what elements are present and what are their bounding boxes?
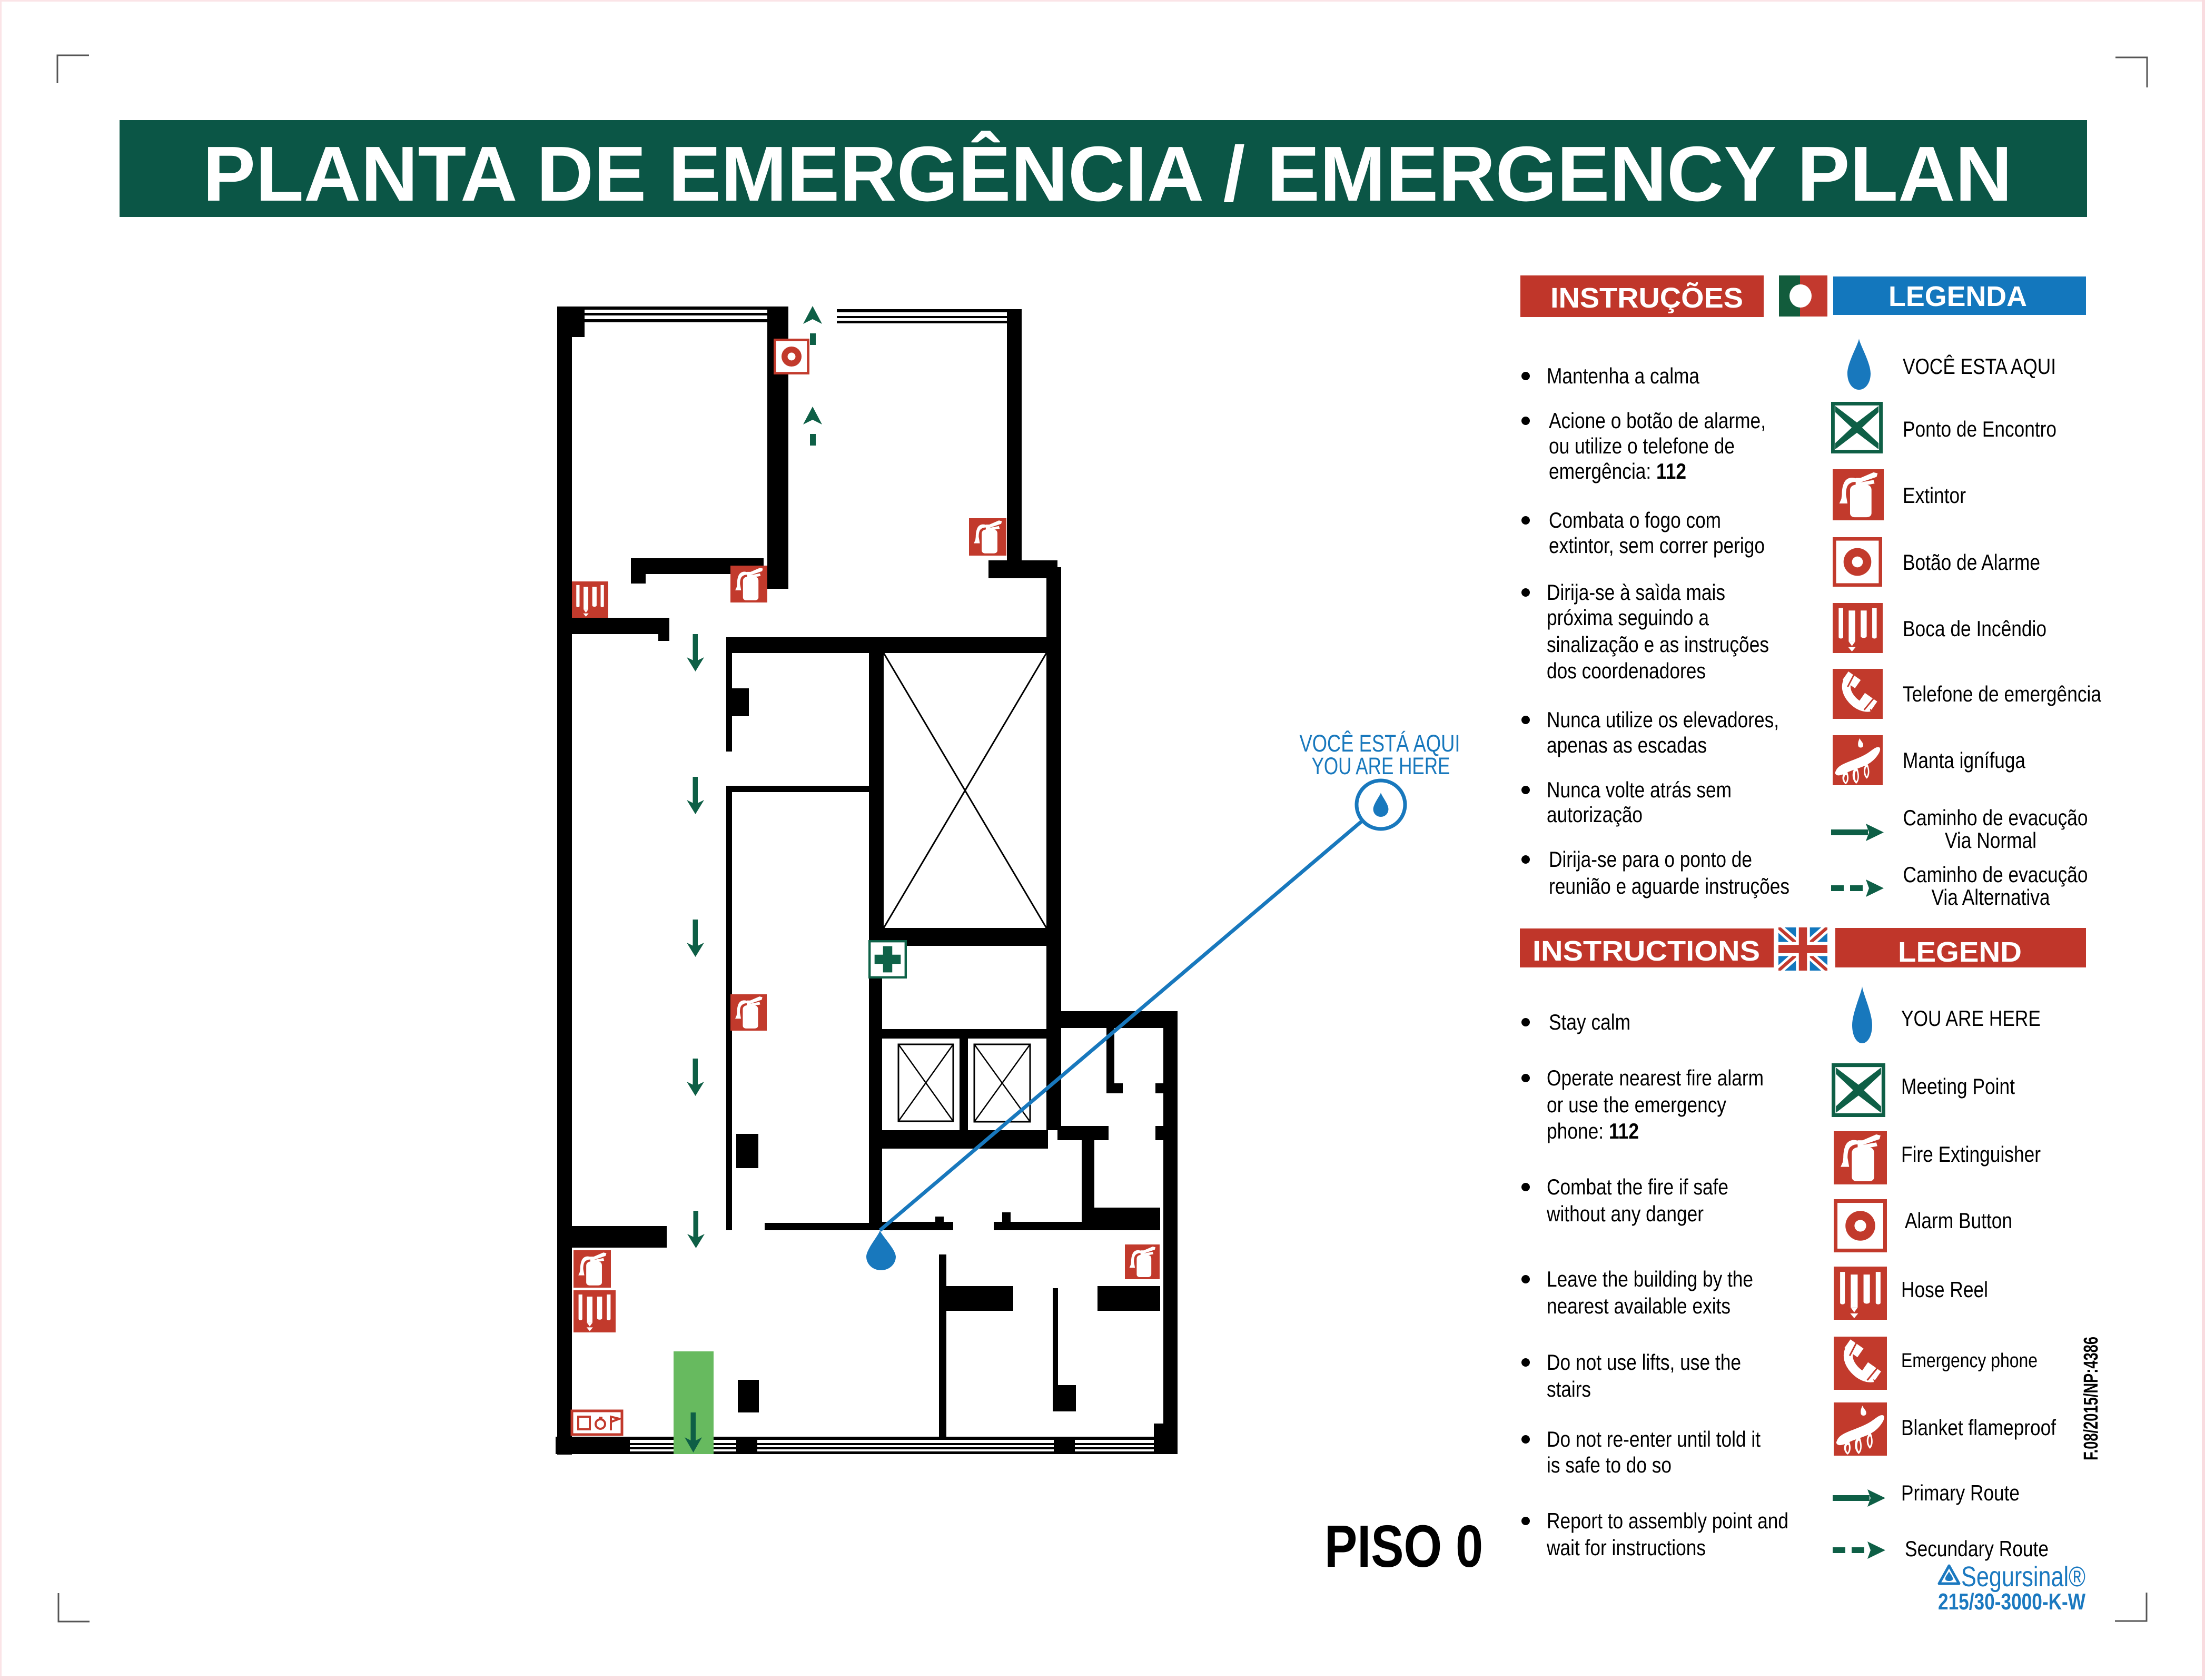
svg-text:Nunca utilize os elevadores,: Nunca utilize os elevadores, bbox=[1547, 707, 1779, 732]
svg-text:INSTRUÇÕES: INSTRUÇÕES bbox=[1550, 282, 1743, 314]
svg-text:LEGEND: LEGEND bbox=[1898, 936, 2022, 968]
svg-text:Do not use lifts, use the: Do not use lifts, use the bbox=[1547, 1350, 1741, 1375]
svg-text:Acione o botão de alarme,: Acione o botão de alarme, bbox=[1549, 408, 1766, 433]
svg-text:ou utilize o telefone de: ou utilize o telefone de bbox=[1549, 433, 1735, 458]
svg-text:Emergency phone: Emergency phone bbox=[1901, 1350, 2038, 1372]
svg-text:Boca de Incêndio: Boca de Incêndio bbox=[1903, 616, 2046, 641]
svg-text:sinalização e as instruções: sinalização e as instruções bbox=[1547, 632, 1769, 657]
svg-text:próxima seguindo a: próxima seguindo a bbox=[1547, 605, 1709, 630]
svg-text:Stay calm: Stay calm bbox=[1549, 1010, 1630, 1034]
svg-text:Nunca volte atrás sem: Nunca volte atrás sem bbox=[1547, 777, 1732, 802]
svg-text:PLANTA DE EMERGÊNCIA / EMERGEN: PLANTA DE EMERGÊNCIA / EMERGENCY PLAN bbox=[203, 131, 2012, 218]
svg-text:YOU ARE HERE: YOU ARE HERE bbox=[1312, 753, 1450, 779]
svg-text:Combata o fogo com: Combata o fogo com bbox=[1549, 508, 1721, 532]
svg-text:Meeting Point: Meeting Point bbox=[1901, 1074, 2015, 1099]
svg-text:Segursinal®: Segursinal® bbox=[1961, 1561, 2085, 1593]
svg-text:is safe to do so: is safe to do so bbox=[1547, 1452, 1672, 1477]
svg-text:Manta ignífuga: Manta ignífuga bbox=[1903, 748, 2026, 773]
svg-text:Extintor: Extintor bbox=[1903, 483, 1966, 508]
svg-text:Leave the building by the: Leave the building by the bbox=[1547, 1267, 1753, 1291]
svg-text:PISO 0: PISO 0 bbox=[1324, 1513, 1483, 1579]
svg-text:Primary Route: Primary Route bbox=[1901, 1480, 2020, 1505]
svg-text:Via Alternativa: Via Alternativa bbox=[1932, 885, 2051, 910]
svg-text:Caminho de evacução: Caminho de evacução bbox=[1903, 862, 2088, 887]
svg-text:Alarm Button: Alarm Button bbox=[1905, 1208, 2012, 1233]
svg-text:LEGENDA: LEGENDA bbox=[1888, 281, 2027, 312]
svg-text:Mantenha a calma: Mantenha a calma bbox=[1547, 363, 1700, 388]
svg-text:VOCÊ ESTA AQUI: VOCÊ ESTA AQUI bbox=[1903, 354, 2056, 379]
svg-text:Botão de Alarme: Botão de Alarme bbox=[1903, 550, 2040, 575]
svg-text:Caminho de evacução: Caminho de evacução bbox=[1903, 805, 2088, 830]
svg-text:Ponto de Encontro: Ponto de Encontro bbox=[1903, 417, 2056, 441]
svg-text:Do not re-enter until told it: Do not re-enter until told it bbox=[1547, 1427, 1761, 1451]
svg-text:extintor, sem correr perigo: extintor, sem correr perigo bbox=[1549, 533, 1765, 558]
svg-text:reunião e aguarde instruções: reunião e aguarde instruções bbox=[1549, 874, 1789, 898]
svg-text:emergência: 112: emergência: 112 bbox=[1549, 459, 1686, 483]
svg-text:Telefone de emergência: Telefone de emergência bbox=[1903, 681, 2102, 706]
svg-text:wait for instructions: wait for instructions bbox=[1546, 1535, 1706, 1560]
svg-text:phone: 112: phone: 112 bbox=[1547, 1119, 1639, 1143]
svg-text:autorização: autorização bbox=[1547, 802, 1643, 827]
svg-text:Operate nearest fire alarm: Operate nearest fire alarm bbox=[1547, 1065, 1764, 1090]
svg-text:without any danger: without any danger bbox=[1546, 1201, 1704, 1226]
svg-text:YOU ARE HERE: YOU ARE HERE bbox=[1901, 1006, 2041, 1031]
svg-text:or use the emergency: or use the emergency bbox=[1547, 1092, 1726, 1117]
svg-text:Dirija-se para o ponto de: Dirija-se para o ponto de bbox=[1549, 847, 1752, 872]
svg-text:Hose Reel: Hose Reel bbox=[1901, 1277, 1988, 1302]
svg-text:Report to assembly point and: Report to assembly point and bbox=[1547, 1508, 1788, 1533]
svg-text:Via Normal: Via Normal bbox=[1945, 828, 2036, 853]
svg-text:nearest available exits: nearest available exits bbox=[1547, 1293, 1731, 1318]
svg-text:Dirija-se à saìda mais: Dirija-se à saìda mais bbox=[1547, 580, 1725, 605]
svg-text:Secundary Route: Secundary Route bbox=[1905, 1536, 2049, 1561]
svg-text:F.08/2015/NP:4386: F.08/2015/NP:4386 bbox=[2080, 1337, 2102, 1460]
svg-text:dos coordenadores: dos coordenadores bbox=[1547, 658, 1706, 683]
svg-text:Fire Extinguisher: Fire Extinguisher bbox=[1901, 1142, 2041, 1167]
svg-text:stairs: stairs bbox=[1547, 1377, 1591, 1401]
svg-text:apenas as escadas: apenas as escadas bbox=[1547, 733, 1707, 757]
svg-text:INSTRUCTIONS: INSTRUCTIONS bbox=[1532, 935, 1760, 967]
svg-text:Blanket flameproof: Blanket flameproof bbox=[1901, 1415, 2056, 1440]
svg-text:215/30-3000-K-W: 215/30-3000-K-W bbox=[1938, 1589, 2085, 1615]
svg-text:Combat the fire if safe: Combat the fire if safe bbox=[1547, 1174, 1728, 1199]
